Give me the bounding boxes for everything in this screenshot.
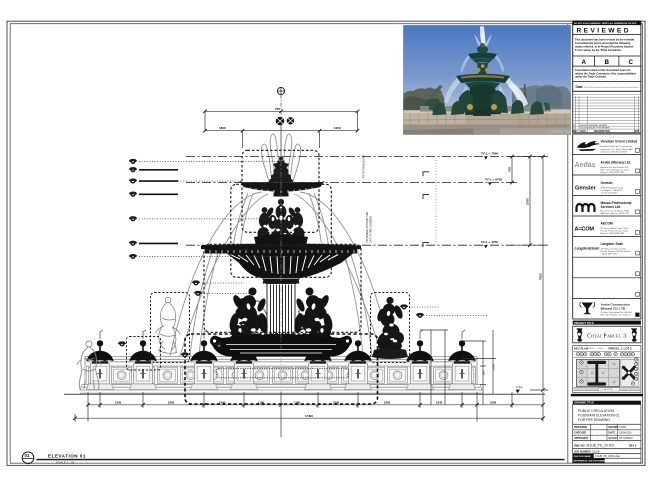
svg-text:1340: 1340 xyxy=(436,401,443,405)
svg-text:TOP MIDDLE OF BASIN TIER: TOP MIDDLE OF BASIN TIER xyxy=(366,212,369,243)
svg-text:SCALE 1 : 10000: SCALE 1 : 10000 xyxy=(587,347,605,350)
svg-text:COTAI STRIP: COTAI STRIP xyxy=(601,388,614,391)
svg-text:DESIGNED: DESIGNED xyxy=(574,426,587,429)
svg-text:Avenida da Praia Grande 599,: Avenida da Praia Grande 599, xyxy=(601,166,629,169)
svg-text:Aedas: Aedas xyxy=(575,162,596,169)
svg-text:JOB NUMBER: JOB NUMBER xyxy=(574,450,591,453)
svg-text:PROJECT TITLE: PROJECT TITLE xyxy=(574,322,594,325)
svg-text:Rua dos Pescadores No. 166-190: Rua dos Pescadores No. 166-190, xyxy=(601,311,633,314)
svg-text:REV: REV xyxy=(573,131,578,133)
svg-text:T.F.L.+ 6750: T.F.L.+ 6750 xyxy=(485,178,502,182)
svg-text:1900: 1900 xyxy=(168,401,175,405)
svg-text:PARCEL 1, LOT 3: PARCEL 1, LOT 3 xyxy=(609,346,632,350)
svg-text:APP: APP xyxy=(635,130,640,133)
svg-text:01: 01 xyxy=(25,453,30,458)
svg-text:This document has been revised: This document has been revised by the re… xyxy=(575,38,634,42)
svg-text:SCALE: SCALE xyxy=(609,437,618,440)
svg-text:Consultants(s) and is accorded: Consultants(s) and is accorded the follo… xyxy=(575,41,631,45)
svg-text:A=COM: A=COM xyxy=(575,227,595,233)
svg-text:12/04/16: 12/04/16 xyxy=(580,128,589,130)
svg-text:1245: 1245 xyxy=(219,401,226,405)
svg-text:8F Grand Lisboa Palace Tw 3,: 8F Grand Lisboa Palace Tw 3, xyxy=(601,227,629,230)
svg-text:CHECKED: CHECKED xyxy=(574,431,587,434)
svg-text:DWG NO: DWG NO xyxy=(574,444,585,447)
svg-text:REVIEWED: REVIEWED xyxy=(577,28,631,35)
svg-text:750: 750 xyxy=(275,107,280,111)
svg-text:Macau T (853) 8898 7888: Macau T (853) 8898 7888 xyxy=(601,233,626,235)
svg-text:1800: 1800 xyxy=(219,126,226,130)
svg-text:Edif. Ind. Veng Hou 11-C, Maca: Edif. Ind. Veng Hou 11-C, Macau xyxy=(601,314,632,316)
svg-text:1245: 1245 xyxy=(333,401,340,405)
svg-text:Estrada da Baia de N. Senhora: Estrada da Baia de N. Senhora da xyxy=(601,145,633,148)
svg-text:Los Angeles, CA 90071,: Los Angeles, CA 90071, xyxy=(601,189,624,192)
svg-text:Edif. Com. Rodrigues 12 andar,: Edif. Com. Rodrigues 12 andar, xyxy=(601,168,630,171)
svg-text:311UB: 311UB xyxy=(592,450,600,453)
svg-text:ISSUED FOR REVIEW: ISSUED FOR REVIEW xyxy=(588,128,610,130)
svg-text:Av. Comercial de Macau 251A,: Av. Comercial de Macau 251A, xyxy=(601,209,630,212)
svg-text:status referred. to in Projec: status referred. to in Project Procedure… xyxy=(575,44,634,48)
svg-text:Venetian Orient Limited: Venetian Orient Limited xyxy=(601,140,638,144)
svg-text:DO NOT SCALE DRAWING. VERIFY A: DO NOT SCALE DRAWING. VERIFY ALL DIMENSI… xyxy=(574,22,637,25)
svg-text:Gensler: Gensler xyxy=(575,186,597,192)
svg-text:FOUNTAIN ELEVATION 01: FOUNTAIN ELEVATION 01 xyxy=(578,414,619,418)
svg-text:1200: 1200 xyxy=(334,126,341,130)
svg-text:7500: 7500 xyxy=(539,273,543,280)
svg-text:311UB_PD_20-001: 311UB_PD_20-001 xyxy=(586,444,615,448)
svg-text:GENERAL REVIEW: GENERAL REVIEW xyxy=(588,124,607,127)
svg-text:Services Ltd.: Services Ltd. xyxy=(601,205,622,209)
svg-text:DATE: DATE xyxy=(609,431,616,434)
svg-text:10/04/15: 10/04/15 xyxy=(580,125,589,127)
svg-text:FRP SCULPTURE: FRP SCULPTURE xyxy=(256,313,258,333)
svg-text:© FOUNTAINS.PARIS: © FOUNTAINS.PARIS xyxy=(545,130,573,134)
svg-text:SCALE 1 : 25: SCALE 1 : 25 xyxy=(56,460,75,464)
svg-text:311UB_PD_20001.dwg: 311UB_PD_20001.dwg xyxy=(595,455,620,458)
svg-text:Esperanca, s/n, Taipa, Macau S: Esperanca, s/n, Taipa, Macau SAR xyxy=(601,148,634,151)
svg-text:APPROVED: APPROVED xyxy=(574,437,588,440)
svg-text:DESCRIPTION: DESCRIPTION xyxy=(594,131,610,133)
svg-text:Rua da Perola Oriental, Taipa,: Rua da Perola Oriental, Taipa, xyxy=(601,229,629,232)
svg-text:1090: 1090 xyxy=(490,401,497,405)
svg-text:CAD FILE NAME: CAD FILE NAME xyxy=(574,455,592,458)
svg-text:Telephone (853) 81-118-898: Telephone (853) 81-118-898 xyxy=(601,151,628,153)
svg-text:DATE: DATE xyxy=(580,130,587,133)
svg-text:1160: 1160 xyxy=(258,401,265,405)
svg-text:Macau T (853) 2833 1022: Macau T (853) 2833 1022 xyxy=(601,172,626,174)
svg-text:AIA Tower, Macau T 2870 0171: AIA Tower, Macau T 2870 0171 xyxy=(601,212,631,215)
svg-text:Langdon Seah: Langdon Seah xyxy=(601,242,624,246)
svg-text:T 1.213.327.3600: T 1.213.327.3600 xyxy=(601,193,618,195)
svg-text:Langdon&Seah: Langdon&Seah xyxy=(575,247,600,251)
svg-text:Date :: Date : xyxy=(576,85,585,89)
svg-text:1060: 1060 xyxy=(492,364,496,370)
svg-text:AECOM: AECOM xyxy=(601,221,614,225)
svg-text:T.F.L.+ 7500: T.F.L.+ 7500 xyxy=(481,152,498,156)
svg-text:REFERENCE CAD FILE NAME: REFERENCE CAD FILE NAME xyxy=(574,460,606,463)
svg-text:Aedas (Macau) Ltd.: Aedas (Macau) Ltd. xyxy=(601,160,631,164)
svg-text:under the Trade Contract.: under the Trade Contract. xyxy=(575,75,607,79)
svg-text:A: A xyxy=(582,59,587,66)
svg-text:1900: 1900 xyxy=(384,401,391,405)
svg-text:1160: 1160 xyxy=(294,401,301,405)
svg-text:AS SHOWN: AS SHOWN xyxy=(619,437,633,440)
svg-text:TOP OF FINIAL BASIN: TOP OF FINIAL BASIN xyxy=(363,155,366,179)
svg-text:1340: 1340 xyxy=(115,401,122,405)
svg-text:2750: 2750 xyxy=(526,198,530,205)
svg-text:relieve the Trade Contractor o: relieve the Trade Contractor of its resp… xyxy=(575,71,637,75)
svg-text:15/04/2016: 15/04/2016 xyxy=(619,431,632,434)
svg-text:T (853) 2833 1710: T (853) 2833 1710 xyxy=(601,254,619,256)
svg-text:REV 0: REV 0 xyxy=(629,444,637,447)
svg-text:F.F.L.: F.F.L. xyxy=(517,385,524,389)
svg-text:16F Macau Finance Centre,: 16F Macau Finance Centre, xyxy=(601,247,627,250)
svg-text:17400: 17400 xyxy=(305,414,313,418)
svg-text:Gensler: Gensler xyxy=(601,181,614,185)
svg-text:C: C xyxy=(629,59,634,66)
svg-text:5.4 for action by the Trade Co: 5.4 for action by the Trade Contractor. xyxy=(575,48,622,52)
svg-text:PUBLIC CIRCULATION: PUBLIC CIRCULATION xyxy=(578,409,614,413)
svg-text:(Macau) CO. LTD.: (Macau) CO. LTD. xyxy=(601,306,627,310)
svg-text:DRAWN: DRAWN xyxy=(609,426,619,429)
svg-text:FOR FRP DRAWING: FOR FRP DRAWING xyxy=(578,418,610,422)
svg-text:ELEVATION 01: ELEVATION 01 xyxy=(48,454,86,459)
svg-text:Consultant review of this docu: Consultant review of this document does … xyxy=(575,68,631,72)
svg-text:1088 Bishopsgate Road,: 1088 Bishopsgate Road, xyxy=(601,186,624,189)
svg-text:T.F.L.+ 4750: T.F.L.+ 4750 xyxy=(481,240,498,244)
svg-text:CHAD: CHAD xyxy=(619,426,626,429)
svg-text:Cotai Parcel 3: Cotai Parcel 3 xyxy=(587,333,626,339)
svg-text:600: 600 xyxy=(482,370,486,375)
svg-text:B: B xyxy=(605,59,610,66)
svg-text:CAST STONE CLADDING: CAST STONE CLADDING xyxy=(370,216,373,243)
svg-text:750: 750 xyxy=(508,167,512,172)
